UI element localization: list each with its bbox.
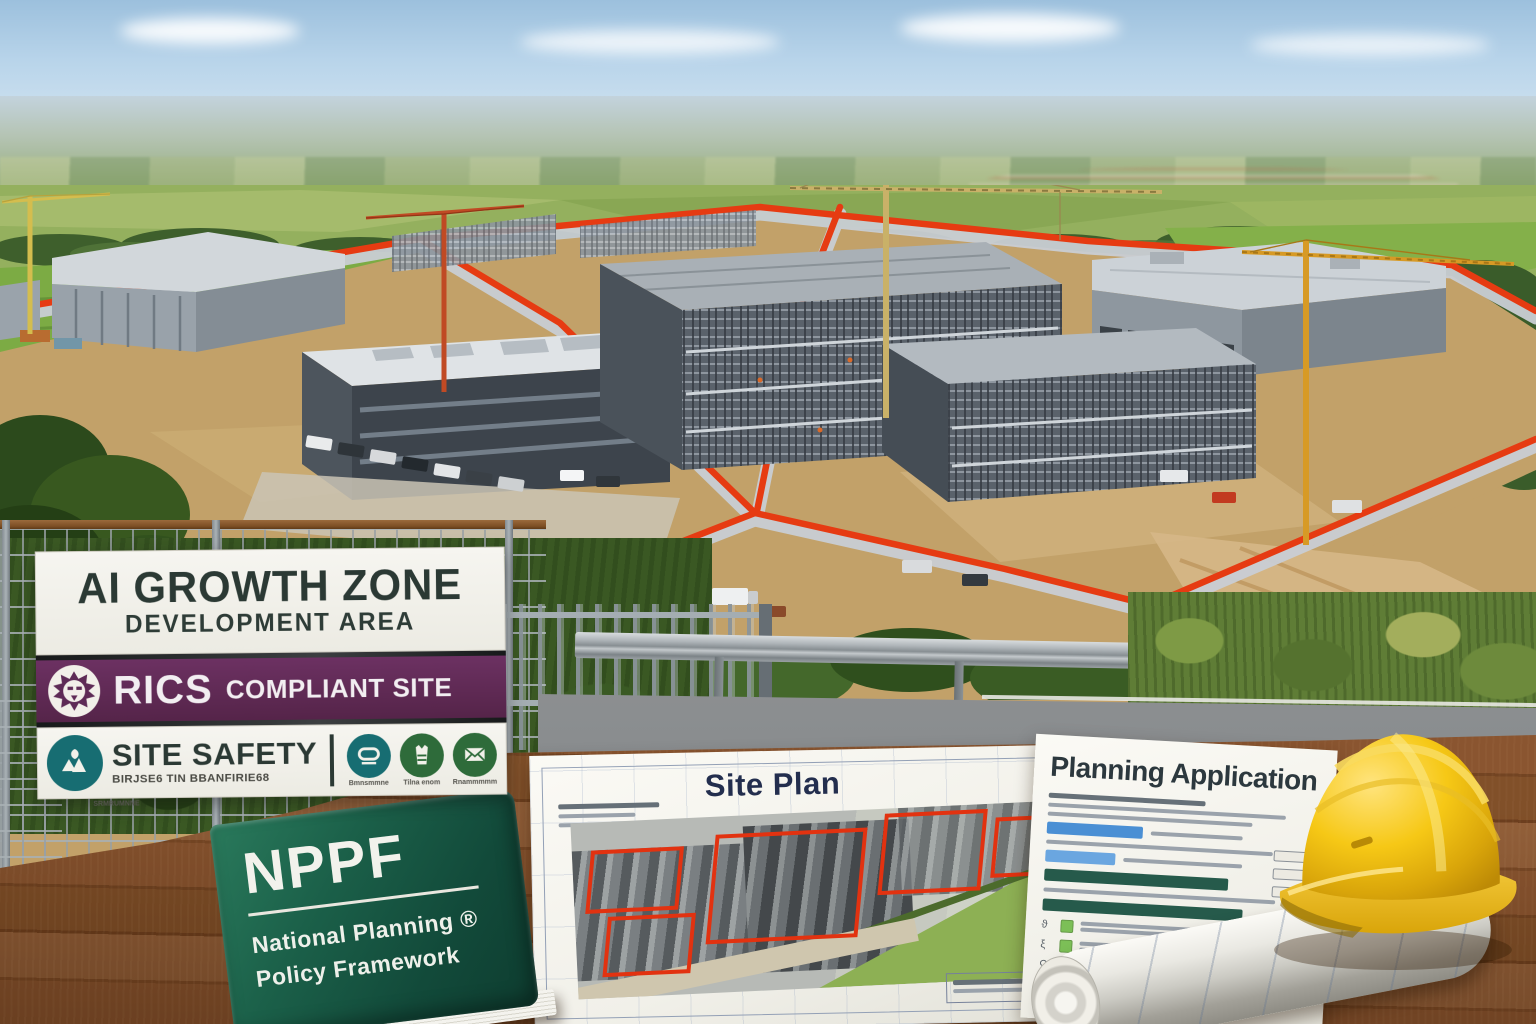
rics-compliant-label: COMPLIANT SITE <box>226 672 453 705</box>
sign-panel-title: AI GROWTH ZONE DEVELOPMENT AREA <box>35 547 506 656</box>
cloud <box>1250 34 1490 56</box>
site-plan-aerial-render <box>570 800 1068 999</box>
status-chip-blue <box>1047 822 1144 839</box>
lion-crest-icon <box>48 665 101 718</box>
site-plan-sheet: Site Plan <box>529 744 1101 1024</box>
fence-top-rail <box>0 520 546 529</box>
checkbox-green <box>1060 919 1074 933</box>
nppf-book: NPPF National Planning ® Policy Framewor… <box>209 788 545 1024</box>
ppe-goggles-badge: Bmnsmmne <box>346 733 391 786</box>
site-safety-label: SITE SAFETY <box>112 737 318 770</box>
book-cover: NPPF National Planning ® Policy Framewor… <box>209 788 539 1024</box>
section-bar-green <box>1044 868 1228 890</box>
redacted-text-line <box>1151 831 1243 840</box>
red-plot-outline <box>603 913 697 977</box>
handwritten-mark: ξ <box>1040 939 1053 951</box>
red-plot-outline <box>585 846 684 914</box>
construction-scene: Site Plan NPPF Nati <box>0 0 1536 1024</box>
cloud <box>120 18 300 44</box>
cloud <box>520 30 780 54</box>
site-signboard: AI GROWTH ZONE DEVELOPMENT AREA RICS COM… <box>35 547 508 800</box>
hat-dome <box>1302 734 1500 900</box>
envelope-gauge-icon <box>452 732 496 776</box>
site-safety-icon <box>47 735 104 792</box>
status-chip-blue-light <box>1045 850 1116 866</box>
hivis-vest-icon <box>399 733 443 777</box>
hat-shadow <box>1274 930 1512 970</box>
sign-panel-safety: SITE SAFETY BIRJSE6 TIN BBANFIRIE68 Bmns… <box>37 723 508 800</box>
badge-caption: SRMRUMNNE <box>93 800 139 807</box>
cloud <box>900 14 1120 42</box>
redacted-text-line <box>953 988 1027 994</box>
badge-caption: Rnammmmm <box>453 778 497 785</box>
badge-caption: Tilna enom <box>403 779 440 786</box>
redacted-text-line <box>558 802 659 809</box>
red-plot-outline <box>877 809 987 895</box>
red-plot-outline <box>706 827 868 944</box>
rics-logo-text: RICS <box>113 667 213 713</box>
handwritten-mark: ϑ <box>1041 919 1054 931</box>
site-access-badge: Rnammmmm <box>452 732 497 785</box>
redacted-text-line <box>1123 858 1242 869</box>
hivis-vest-badge: Tilna enom <box>399 733 444 786</box>
sign-vertical-divider <box>330 734 334 786</box>
sign-panel-rics: RICS COMPLIANT SITE <box>36 656 507 723</box>
badge-caption: Bmnsmmne <box>349 779 389 786</box>
redacted-text-line <box>558 813 635 819</box>
sign-subtitle: DEVELOPMENT AREA <box>125 608 415 640</box>
goggles-icon <box>346 733 390 777</box>
steel-frame-right <box>882 328 1256 502</box>
site-safety-subtext: BIRJSE6 TIN BBANFIRIE68 <box>112 773 270 785</box>
sign-title: AI GROWTH ZONE <box>77 562 462 612</box>
yellow-hard-hat <box>1272 690 1524 974</box>
section-bar-green <box>1042 898 1242 921</box>
site-plan-title: Site Plan <box>704 765 840 804</box>
